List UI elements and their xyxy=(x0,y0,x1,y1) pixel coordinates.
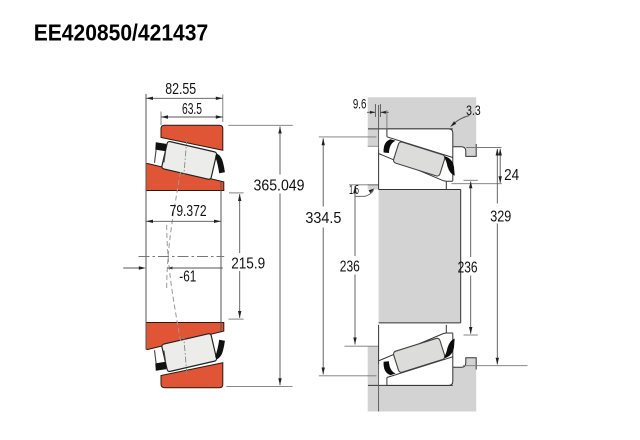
svg-text:3.3: 3.3 xyxy=(466,102,481,118)
svg-text:365.049: 365.049 xyxy=(254,178,305,195)
svg-text:236: 236 xyxy=(340,259,360,276)
svg-text:329: 329 xyxy=(490,209,511,226)
svg-text:24: 24 xyxy=(504,167,519,184)
svg-text:334.5: 334.5 xyxy=(305,210,341,227)
svg-text:-61: -61 xyxy=(179,269,196,286)
svg-text:EE420850/421437: EE420850/421437 xyxy=(34,19,209,45)
svg-text:1.5: 1.5 xyxy=(349,182,359,197)
svg-text:82.55: 82.55 xyxy=(165,81,196,98)
svg-text:215.9: 215.9 xyxy=(231,255,265,272)
svg-text:236: 236 xyxy=(458,260,478,277)
svg-text:63.5: 63.5 xyxy=(182,101,202,118)
svg-text:9.6: 9.6 xyxy=(353,96,367,112)
svg-text:79.372: 79.372 xyxy=(170,203,207,220)
